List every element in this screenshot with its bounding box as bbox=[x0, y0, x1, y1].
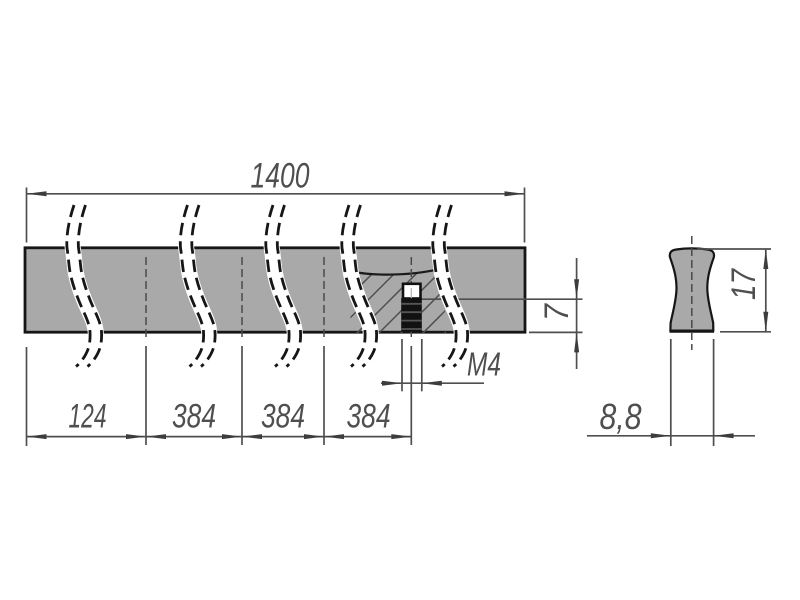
svg-text:124: 124 bbox=[69, 398, 107, 436]
svg-text:7: 7 bbox=[538, 303, 576, 321]
svg-text:17: 17 bbox=[725, 268, 763, 300]
svg-text:8,8: 8,8 bbox=[600, 396, 642, 437]
svg-text:1400: 1400 bbox=[251, 157, 310, 196]
svg-text:384: 384 bbox=[172, 398, 216, 436]
svg-text:384: 384 bbox=[347, 398, 391, 436]
svg-text:384: 384 bbox=[261, 398, 305, 436]
svg-text:M4: M4 bbox=[467, 346, 501, 383]
